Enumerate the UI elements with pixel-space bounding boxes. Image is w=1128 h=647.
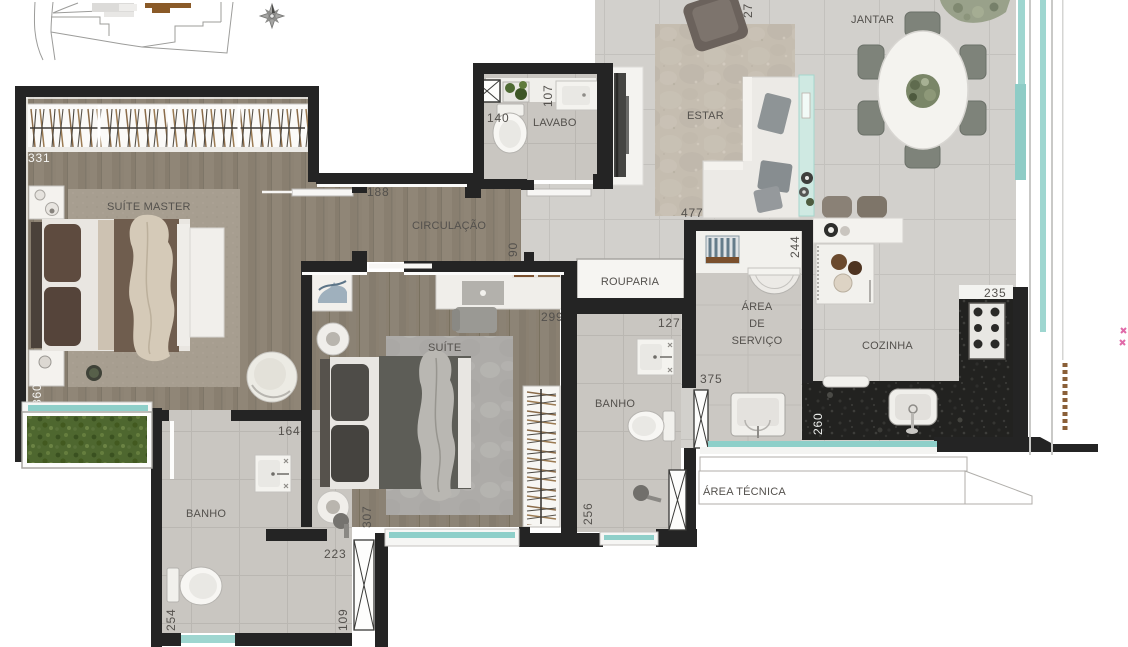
svg-text:ÁREA: ÁREA bbox=[742, 300, 773, 313]
svg-text:109: 109 bbox=[336, 609, 350, 631]
svg-text:SERVIÇO: SERVIÇO bbox=[732, 335, 783, 347]
svg-text:ESTAR: ESTAR bbox=[687, 110, 724, 122]
svg-text:260: 260 bbox=[811, 413, 825, 435]
svg-text:477: 477 bbox=[681, 206, 703, 220]
svg-text:188: 188 bbox=[367, 185, 389, 199]
svg-text:90: 90 bbox=[506, 242, 520, 257]
svg-text:107: 107 bbox=[541, 85, 555, 107]
svg-text:COZINHA: COZINHA bbox=[862, 340, 913, 352]
svg-text:CIRCULAÇÃO: CIRCULAÇÃO bbox=[412, 219, 486, 232]
svg-text:164: 164 bbox=[278, 424, 300, 438]
svg-text:299: 299 bbox=[541, 310, 563, 324]
svg-text:235: 235 bbox=[984, 286, 1006, 300]
svg-text:256: 256 bbox=[581, 503, 595, 525]
svg-text:SUÍTE MASTER: SUÍTE MASTER bbox=[107, 200, 191, 213]
svg-text:244: 244 bbox=[788, 236, 802, 258]
svg-text:DE: DE bbox=[749, 318, 765, 330]
svg-text:375: 375 bbox=[700, 372, 722, 386]
svg-text:ÁREA TÉCNICA: ÁREA TÉCNICA bbox=[703, 485, 786, 498]
svg-text:ROUPARIA: ROUPARIA bbox=[601, 276, 660, 288]
svg-text:307: 307 bbox=[360, 506, 374, 528]
svg-text:254: 254 bbox=[164, 609, 178, 631]
svg-text:27: 27 bbox=[741, 3, 755, 18]
svg-text:JANTAR: JANTAR bbox=[851, 14, 894, 26]
svg-text:BANHO: BANHO bbox=[595, 398, 635, 410]
svg-text:BANHO: BANHO bbox=[186, 508, 226, 520]
svg-text:140: 140 bbox=[487, 111, 509, 125]
svg-text:127: 127 bbox=[658, 316, 680, 330]
svg-text:LAVABO: LAVABO bbox=[533, 117, 577, 129]
svg-text:223: 223 bbox=[324, 547, 346, 561]
svg-text:331: 331 bbox=[28, 151, 50, 165]
svg-text:SUÍTE: SUÍTE bbox=[428, 341, 461, 354]
